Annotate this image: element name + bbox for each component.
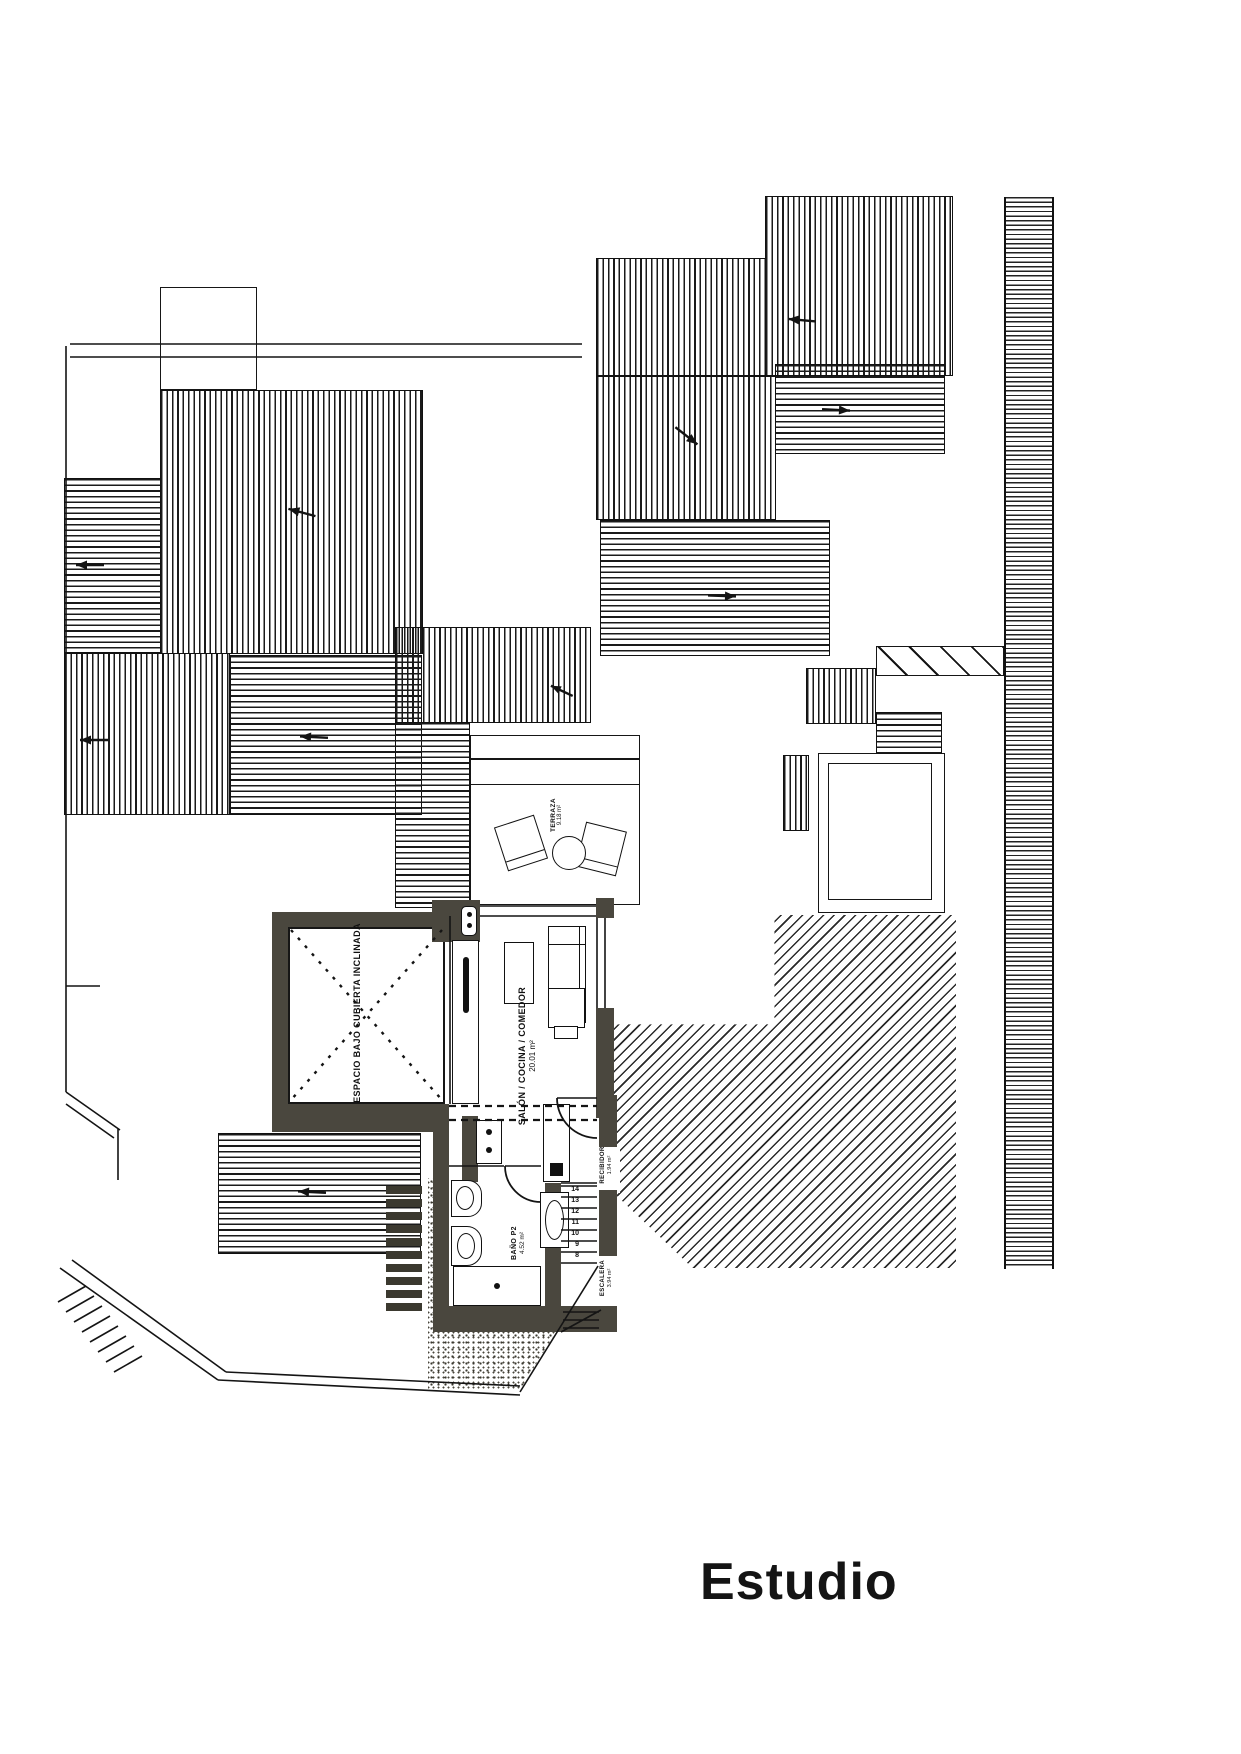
room-label-recibidor: RECIBIDOR 1.94 m² — [600, 1137, 614, 1193]
roof-plane-w1 — [64, 478, 161, 653]
room-name: RECIBIDOR — [600, 1146, 607, 1183]
kitchen-sink — [463, 957, 469, 1013]
roof-plane-center-e — [600, 520, 830, 656]
roof-plane-e — [775, 364, 945, 454]
roof-plane-w3 — [230, 655, 422, 815]
salon-right-window — [597, 918, 605, 1008]
room-label-espacio: ESPACIO BAJO CUBIERTA INCLINADA — [350, 918, 364, 1108]
roof-plane-above-terrace — [395, 627, 591, 723]
wall-segment — [433, 1306, 617, 1332]
wall-segment — [272, 1104, 448, 1132]
roof-plane-sw — [218, 1133, 421, 1254]
shower-tray — [453, 1266, 541, 1306]
roof-plane-w2 — [64, 653, 230, 815]
wall-segment — [433, 1104, 449, 1322]
toilet — [451, 1226, 482, 1266]
kitchen-appliance — [476, 1120, 502, 1164]
roof-plane-nw — [160, 390, 423, 654]
roof-small-3 — [783, 755, 809, 831]
window-lines — [480, 906, 596, 916]
outbuilding-outline — [160, 287, 257, 390]
wall-segment — [272, 912, 288, 1132]
hob-burner — [467, 912, 472, 917]
hall-wardrobe — [543, 1104, 570, 1182]
room-label-bano: BAÑO P2 4.52 m² — [511, 1208, 527, 1278]
floor-plan-sheet: 14 13 12 11 10 9 8 — [0, 0, 1241, 1754]
patio-inner-outline — [828, 763, 932, 900]
room-area: 9.18 m² — [557, 805, 564, 825]
appliance-knob — [486, 1147, 492, 1153]
terrace-planter-row — [470, 735, 640, 759]
roof-plane-center-n — [596, 376, 776, 520]
room-label-escalera: ESCALERA 3.94 m² — [600, 1250, 614, 1306]
room-area: 1.94 m² — [607, 1156, 614, 1175]
neighbor-building-strip — [1004, 197, 1054, 1269]
roof-plane-w3-ext — [395, 722, 470, 908]
room-area: 4.52 m² — [519, 1232, 527, 1254]
roof-small-2 — [876, 712, 942, 758]
bidet — [451, 1180, 482, 1217]
attic-room-floor — [288, 927, 445, 1104]
wall-segment — [596, 898, 614, 918]
stair-number: 11 — [565, 1219, 579, 1226]
patio-outline — [818, 753, 945, 913]
hob-burner — [467, 923, 472, 928]
room-name: ESCALERA — [600, 1260, 607, 1296]
kitchen-counter — [452, 940, 479, 1104]
stair-number: 12 — [565, 1208, 579, 1215]
room-name: TERRAZA — [550, 798, 558, 832]
room-label-salon: SALÓN / COCINA / COMEDOR 20.01 m² — [516, 976, 538, 1136]
site-boundary-diagonal — [60, 1260, 226, 1380]
roof-small-1 — [806, 668, 876, 724]
washbasin — [545, 1200, 564, 1240]
room-name: BAÑO P2 — [511, 1226, 519, 1260]
stair-number: 9 — [565, 1241, 579, 1248]
bidet-bowl — [456, 1186, 474, 1210]
site-boundary — [66, 1092, 120, 1180]
stair-number: 14 — [565, 1186, 579, 1193]
sheet-title: Estudio — [700, 1552, 1000, 1612]
room-area: 20.01 m² — [528, 1040, 538, 1072]
hob-unit — [461, 906, 477, 936]
room-name: ESPACIO BAJO CUBIERTA INCLINADA — [352, 923, 363, 1103]
roof-plane-ne — [765, 196, 953, 376]
boundary-tick-hatch — [58, 1286, 142, 1372]
shower-drain — [494, 1283, 500, 1289]
stair-number: 10 — [565, 1230, 579, 1237]
toilet-bowl — [457, 1233, 475, 1259]
appliance-knob — [486, 1129, 492, 1135]
stair-number: 13 — [565, 1197, 579, 1204]
terrace-planter-row — [470, 759, 640, 785]
wall-segment — [599, 1190, 617, 1256]
stair-number: 8 — [565, 1252, 579, 1259]
roof-plane-se-diagonal — [600, 915, 956, 1268]
roof-plane-n — [596, 258, 766, 376]
wardrobe-mark — [550, 1163, 563, 1176]
room-name: SALÓN / COCINA / COMEDOR — [517, 987, 528, 1125]
room-label-terraza: TERRAZA 9.18 m² — [549, 785, 565, 845]
chair-seat-line — [506, 849, 544, 862]
dining-table — [548, 988, 585, 1028]
dining-chair — [554, 1026, 578, 1039]
walkway-connector — [876, 646, 1004, 676]
room-area: 3.94 m² — [607, 1269, 614, 1288]
